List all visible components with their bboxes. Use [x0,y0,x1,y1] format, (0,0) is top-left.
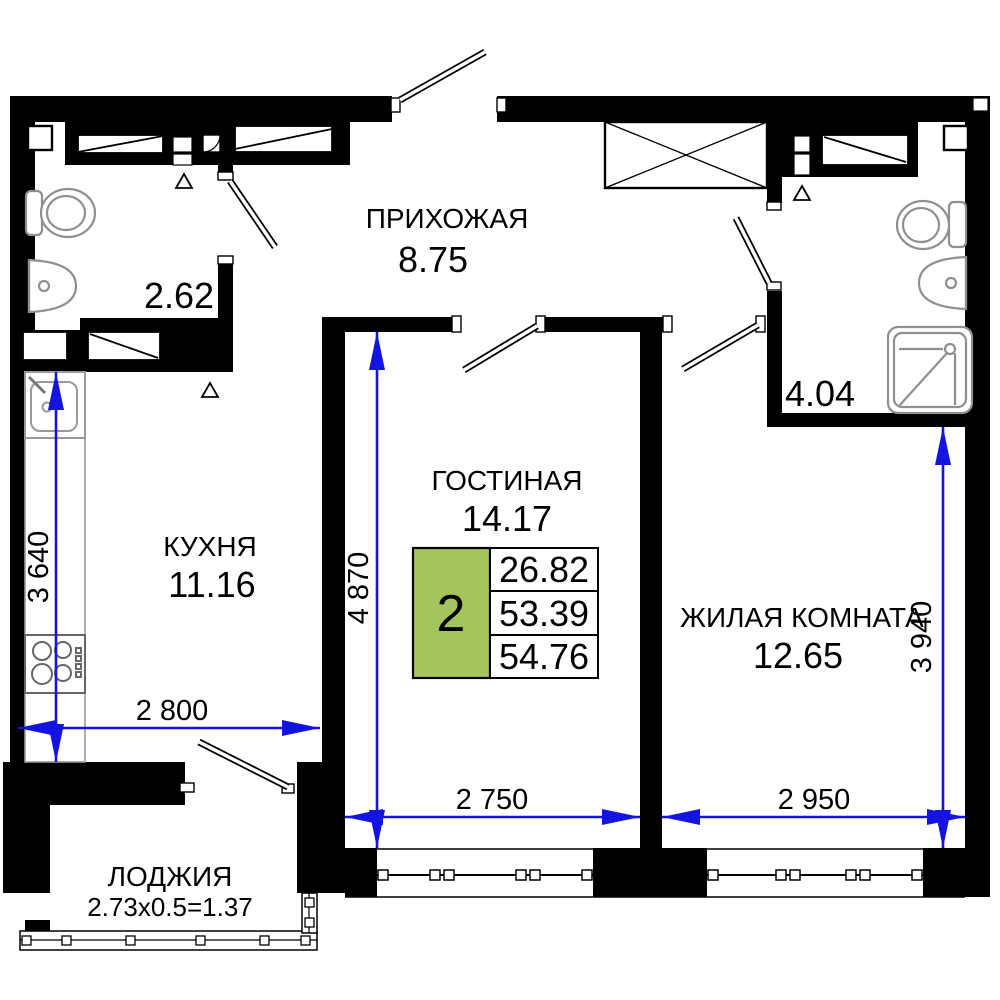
wall-kitchen-bottom [3,762,185,805]
shaft-left-b [173,154,192,165]
bathroom-small-area: 2.62 [144,275,214,316]
shaft-right-b [794,154,810,175]
living-label: ГОСТИНАЯ [431,465,582,496]
wall-loggia-right [297,762,345,893]
duct-4 [23,332,67,360]
wall-bath1-right [218,264,233,330]
wall-hall-bottom-left [322,317,453,332]
bathroom-large-area: 4.04 [785,373,855,414]
shower-icon [888,327,972,413]
floor-plan-page: 3 640 2 800 4 870 2 750 2 950 3 940 ПРИХ… [0,0,1000,1000]
washbasin-icon [919,257,966,309]
wall-kitchen-living [322,317,345,762]
duct-square-right [944,126,968,150]
summary-table: 2 26.82 53.39 54.76 [413,548,598,678]
wall-bath2-left-lower [767,291,782,413]
shaft-left-a [173,137,192,152]
wall-window-block-c [662,848,707,897]
bedroom-label: ЖИЛАЯ КОМНАТА [680,602,924,633]
wall-hall-bottom-mid [545,317,672,332]
toilet-icon [897,201,966,249]
bedroom-area: 12.65 [753,635,843,676]
wardrobe-icon [605,122,767,188]
floor-plan-svg: 3 640 2 800 4 870 2 750 2 950 3 940 ПРИХ… [0,0,1000,1000]
corner-notch [973,98,988,111]
wall-loggia-left [3,805,50,893]
shaft-right-a [794,136,810,152]
dim-living-width: 2 750 [456,784,529,816]
dim-bedroom-width: 2 950 [778,784,851,816]
toilet-icon [26,189,95,237]
dim-kitchen-width: 2 800 [136,695,209,727]
wall-window-block-a [345,848,377,897]
wall-top-left [10,96,392,122]
duct-square-left [28,126,52,150]
wall-bath2-left-upper [767,150,782,203]
living-area: 14.17 [462,498,552,539]
wall-bath2-bottom [767,413,965,427]
loggia-label: ЛОДЖИЯ [108,861,233,892]
summary-rooms-count: 2 [437,585,466,643]
dim-kitchen-depth: 3 640 [23,531,55,604]
summary-area-without-loggia: 53.39 [499,593,589,634]
wall-living-bedroom [640,332,662,848]
wall-window-block-d [923,848,965,897]
kitchen-area: 11.16 [168,564,255,605]
hallway-area: 8.75 [398,239,468,280]
washbasin-icon [29,260,76,312]
hallway-label: ПРИХОЖАЯ [366,203,529,234]
wall-top-right [497,96,990,122]
vent-triangle-icon [794,186,810,200]
loggia-area: 2.73x0.5=1.37 [87,892,253,922]
summary-total-area: 54.76 [499,636,589,677]
vent-triangle-icon [202,383,218,397]
vent-triangle-icon [176,174,192,188]
dim-living-depth: 4 870 [343,552,375,625]
summary-living-area: 26.82 [499,549,589,590]
wall-right [965,122,990,897]
wall-window-block-b [593,848,662,897]
kitchen-label: КУХНЯ [163,531,257,562]
